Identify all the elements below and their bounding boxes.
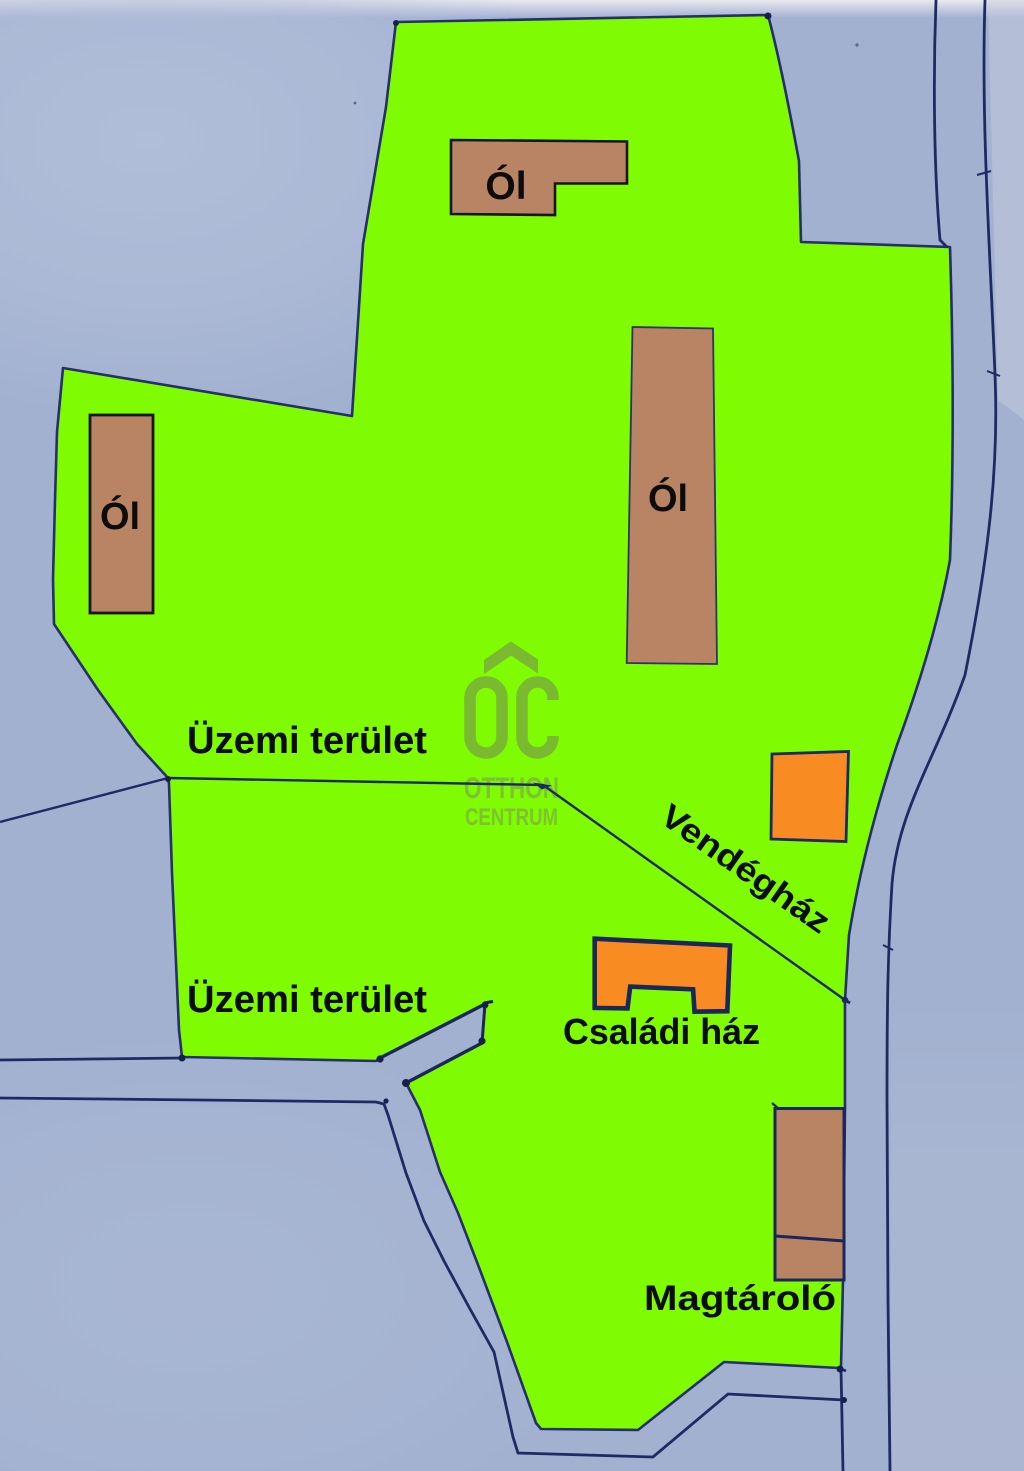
svg-text:CENTRUM: CENTRUM — [465, 804, 558, 831]
svg-text:Üzemi terület: Üzemi terület — [187, 978, 427, 1021]
svg-text:Ól: Ól — [100, 494, 140, 538]
svg-text:Családi ház: Családi ház — [563, 1011, 760, 1052]
svg-text:Magtároló: Magtároló — [644, 1279, 836, 1318]
svg-text:Ól: Ól — [648, 476, 688, 520]
svg-text:OTTHON: OTTHON — [464, 772, 559, 805]
svg-text:Üzemi terület: Üzemi terület — [187, 719, 427, 762]
svg-text:Ól: Ól — [485, 164, 526, 208]
